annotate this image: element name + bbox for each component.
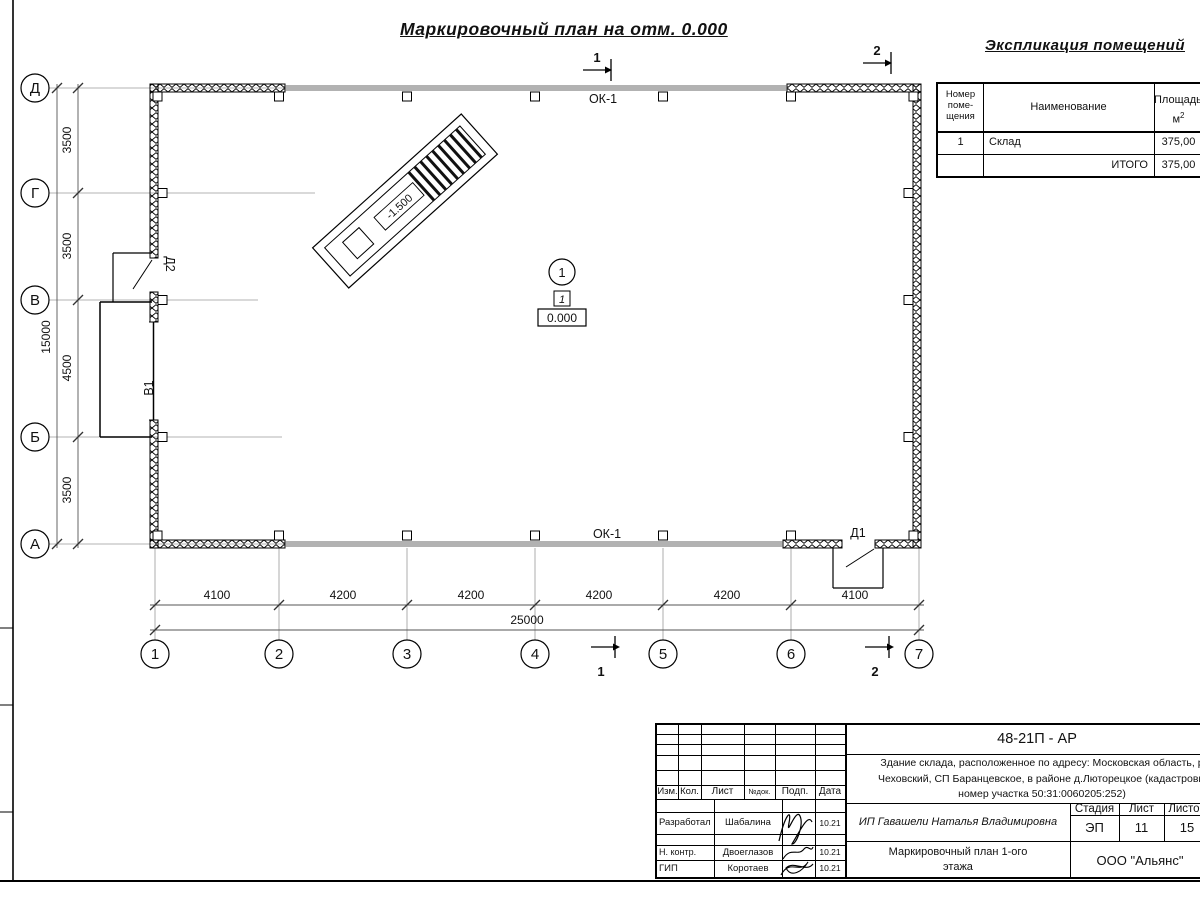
unit-m: м [1172, 114, 1180, 126]
tb-doc-number: 48-21П - АР [847, 725, 1200, 754]
window-band-bottom [285, 542, 783, 546]
tb-plan-title: Маркировочный план 1-ого этажа [846, 845, 1070, 875]
tb-col-kol: Кол. [678, 785, 701, 799]
dim-1-2: 4100 [204, 588, 231, 602]
section-2-label-top: 2 [873, 43, 880, 58]
title-block: Изм. Кол. Лист №док. Подп. Дата Разработ… [655, 723, 1200, 879]
tb-client: ИП Гавашели Наталья Владимировна [846, 803, 1070, 841]
wall-bottom-left [150, 540, 285, 548]
total-area: 375,00 [1154, 154, 1200, 176]
room-number: 1 [558, 265, 565, 280]
tb-line [657, 799, 845, 800]
wall-bottom-mid [783, 540, 842, 548]
section-marker-1-bottom [591, 636, 620, 658]
room-row-area: 375,00 [1154, 131, 1200, 154]
header-num-line1: Номер [938, 89, 983, 100]
dim-3-4: 4200 [458, 588, 485, 602]
tb-gip-date: 10.21 [815, 860, 845, 877]
section-1-label-bottom: 1 [597, 664, 604, 679]
tb-sheets-value: 15 [1164, 815, 1200, 841]
axis-grid-lines [49, 88, 919, 640]
tb-line [657, 834, 845, 835]
tb-line [657, 744, 845, 745]
tb-stage-label: Стадия [1070, 803, 1119, 815]
tb-developed-label: Разработал [659, 812, 714, 834]
dim-total-bottom: 25000 [510, 613, 544, 627]
axis-letter-g: Г [31, 185, 39, 202]
wall-top-right [787, 84, 921, 92]
wall-right [913, 84, 921, 548]
tb-plan-title-line2: этажа [846, 860, 1070, 875]
wall-left-lower [150, 420, 158, 548]
tb-stage-value: ЭП [1070, 815, 1119, 841]
explication-title: Экспликация помещений [950, 37, 1200, 54]
section-1-label-top: 1 [593, 50, 600, 65]
tb-gip-name: Коротаев [714, 860, 782, 877]
room-row-name: Склад [989, 131, 1149, 154]
section-marker-2-bottom [865, 636, 894, 658]
axis-number-7: 7 [915, 646, 923, 663]
door-d1 [833, 548, 883, 588]
tb-developed-date: 10.21 [815, 812, 845, 834]
door-d2-label: Д2 [163, 256, 177, 271]
explication-table: Номер поме- щения Наименование Площадь, … [936, 82, 1200, 178]
unit-sup: 2 [1180, 111, 1184, 120]
door-d1-label: Д1 [850, 526, 865, 540]
header-area-line2: м2 [1154, 108, 1200, 128]
window-ok1-label-bottom: ОК-1 [593, 527, 621, 541]
tb-sheets-label: Листов [1164, 803, 1200, 815]
axis-number-2: 2 [275, 646, 283, 663]
tb-ncontr-name: Двоеглазов [714, 845, 782, 860]
tb-line [657, 755, 845, 756]
header-area-line1: Площадь, [1154, 92, 1200, 108]
dim-6-7: 4100 [842, 588, 869, 602]
tb-col-ndok: №док. [744, 785, 775, 799]
dim-g-v: 3500 [60, 232, 74, 259]
tb-col-podp: Подп. [775, 785, 815, 799]
floor-type-mark: 1 [559, 294, 565, 306]
section-2-label-bottom: 2 [871, 664, 878, 679]
exterior-walls [150, 84, 921, 548]
ramp-pit: -1.500 [313, 114, 498, 288]
dim-2-3: 4200 [330, 588, 357, 602]
loading-platform [100, 302, 152, 437]
axis-number-6: 6 [787, 646, 795, 663]
wall-left-mid [150, 292, 158, 322]
tb-col-list: Лист [701, 785, 744, 799]
axis-number-5: 5 [659, 646, 667, 663]
axis-letter-b: Б [30, 429, 40, 446]
dim-total-left: 15000 [39, 320, 53, 354]
dimension-lines-left: 3500 3500 4500 3500 15000 [39, 83, 83, 549]
dim-b-a: 3500 [60, 476, 74, 503]
dim-v-b: 4500 [60, 354, 74, 381]
tb-sheet-value: 11 [1119, 815, 1164, 841]
tb-ncontr-label: Н. контр. [659, 845, 714, 860]
total-label: ИТОГО [983, 154, 1154, 176]
tb-description-line1: Здание склада, расположенное по адресу: … [849, 756, 1200, 772]
tb-sheet-label: Лист [1119, 803, 1164, 815]
axis-circles-letters [21, 74, 49, 558]
tb-plan-title-line1: Маркировочный план 1-ого [846, 845, 1070, 860]
tb-description-line2: Чеховский, СП Баранцевское, в районе д.Л… [849, 772, 1200, 788]
tb-ncontr-date: 10.21 [815, 845, 845, 860]
door-d2 [113, 253, 152, 302]
axis-number-1: 1 [151, 646, 159, 663]
header-num-line3: щения [938, 111, 983, 122]
dim-d-g: 3500 [60, 126, 74, 153]
signature-gip [778, 856, 815, 879]
gate-v1 [149, 322, 158, 420]
tb-col-data: Дата [815, 785, 845, 799]
drawing-title: Маркировочный план на отм. 0.000 [400, 19, 700, 40]
tb-description-line3: номер участка 50:31:0060205:252) [849, 787, 1200, 803]
tb-line [657, 877, 845, 878]
gate-v1-label: В1 [142, 380, 156, 395]
tb-line [657, 734, 845, 735]
wall-top-left [150, 84, 285, 92]
wall-left-upper [150, 84, 158, 258]
axis-letter-d: Д [30, 80, 40, 97]
axis-letter-a: А [30, 536, 40, 553]
elevation-mark: 0.000 [547, 311, 577, 325]
tb-line [845, 754, 1200, 755]
header-num-line2: поме- [938, 100, 983, 111]
explication-header-name: Наименование [983, 84, 1154, 131]
tb-gip-label: ГИП [659, 860, 714, 877]
explication-header-area: Площадь, м2 [1154, 92, 1200, 128]
tb-description: Здание склада, расположенное по адресу: … [849, 756, 1200, 803]
dim-5-6: 4200 [714, 588, 741, 602]
window-band-top [285, 86, 787, 90]
tb-col-izm: Изм. [657, 785, 678, 799]
tb-line [657, 770, 845, 771]
columns [153, 92, 918, 540]
drawing-sheet: Д2 В1 Д1 ОК-1 ОК-1 -1.500 1 1 0.000 [0, 0, 1200, 900]
window-ok1-label-top: ОК-1 [589, 92, 617, 106]
axis-number-3: 3 [403, 646, 411, 663]
axis-number-4: 4 [531, 646, 539, 663]
signature-developed [775, 801, 815, 847]
axis-letter-v: В [30, 292, 40, 309]
tb-company: ООО "Альянс" [1070, 841, 1200, 881]
tb-developed-name: Шабалина [714, 812, 782, 834]
dimension-lines-bottom: 4100 4200 4200 4200 4200 4100 25000 [150, 588, 924, 635]
explication-header-num: Номер поме- щения [938, 89, 983, 122]
room-row-number: 1 [938, 131, 983, 154]
dim-4-5: 4200 [586, 588, 613, 602]
